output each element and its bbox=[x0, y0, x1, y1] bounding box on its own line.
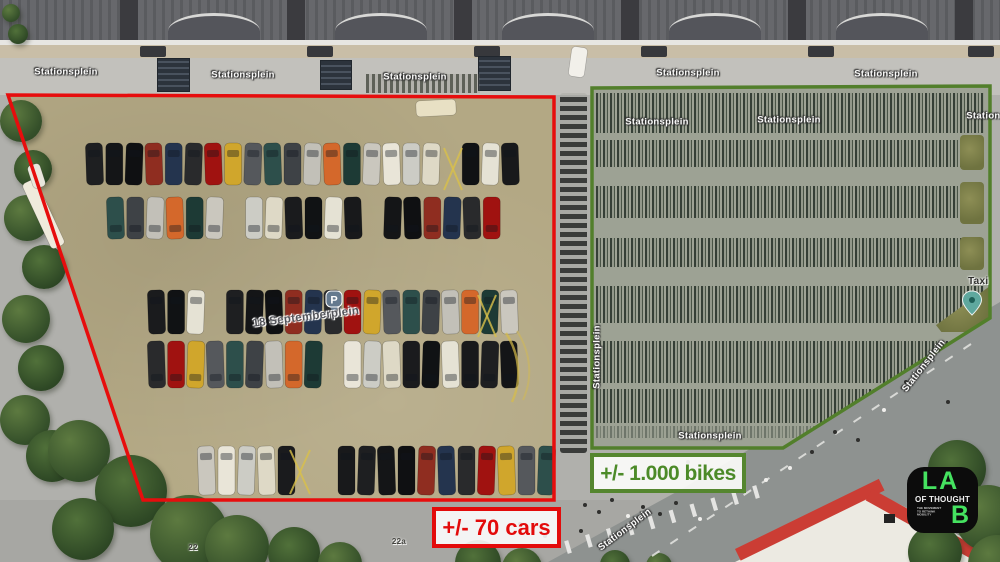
street-label: Stationsplein bbox=[757, 115, 821, 125]
parked-cars bbox=[21, 46, 588, 495]
bike-area-outline bbox=[592, 86, 990, 448]
street-label: Stationsplein bbox=[854, 69, 918, 79]
svg-text:P: P bbox=[330, 295, 337, 307]
crosswalk bbox=[566, 486, 758, 553]
map-overlay: P bbox=[0, 0, 1000, 562]
logo-la: LA bbox=[907, 467, 974, 496]
street-label: Stationsplein bbox=[966, 111, 1000, 121]
street-label: Stationsplein bbox=[383, 72, 447, 82]
street-label: Stationsplein bbox=[625, 117, 689, 127]
street-label: Stationsplein bbox=[211, 70, 275, 80]
street-label: Stationsplein bbox=[656, 68, 720, 78]
cars-callout: +/- 70 cars bbox=[432, 507, 561, 548]
logo-b: B bbox=[951, 501, 969, 530]
lab-of-thought-logo: LA OF THOUGHT THE MOVEMENT TO RETHINK MO… bbox=[907, 467, 978, 533]
street-label: Stationsplein bbox=[592, 325, 602, 389]
taxi-label: Taxi bbox=[968, 277, 988, 287]
address-label: 22 bbox=[188, 544, 198, 552]
street-label: Stationsplein bbox=[678, 431, 742, 441]
cars-callout-text: +/- 70 cars bbox=[442, 517, 550, 539]
logo-tagline: THE MOVEMENT TO RETHINK MOBILITY bbox=[917, 507, 941, 517]
taxi-pin[interactable] bbox=[963, 291, 982, 315]
street-label: Stationsplein bbox=[34, 67, 98, 77]
satellite-map: P Stationsplein Stationsplein Stationspl… bbox=[0, 0, 1000, 562]
address-label: 22a bbox=[392, 538, 406, 546]
bikes-callout-text: +/- 1.000 bikes bbox=[600, 463, 736, 484]
bikes-callout: +/- 1.000 bikes bbox=[590, 453, 746, 493]
